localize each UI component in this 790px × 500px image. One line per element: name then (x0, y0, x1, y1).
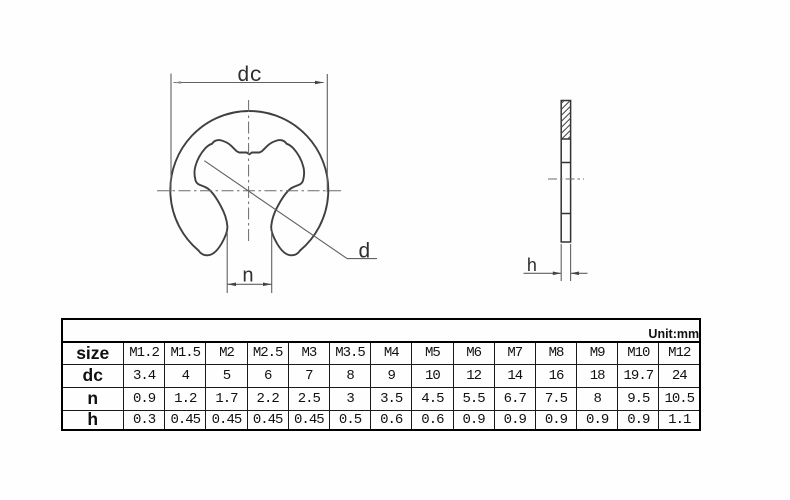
svg-text:d: d (358, 242, 371, 265)
svg-text:dc: dc (237, 65, 262, 88)
svg-text:h: h (527, 257, 538, 277)
svg-text:n: n (242, 266, 254, 289)
